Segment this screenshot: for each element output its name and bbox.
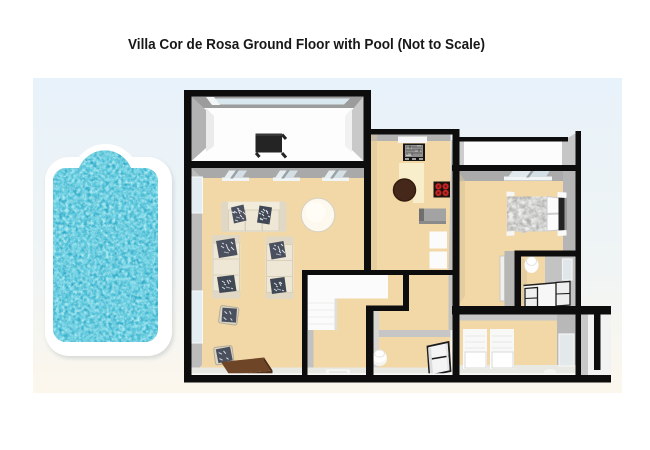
svg-text:Villa Cor de Rosa Ground Floor: Villa Cor de Rosa Ground Floor with Pool… [128, 37, 485, 53]
